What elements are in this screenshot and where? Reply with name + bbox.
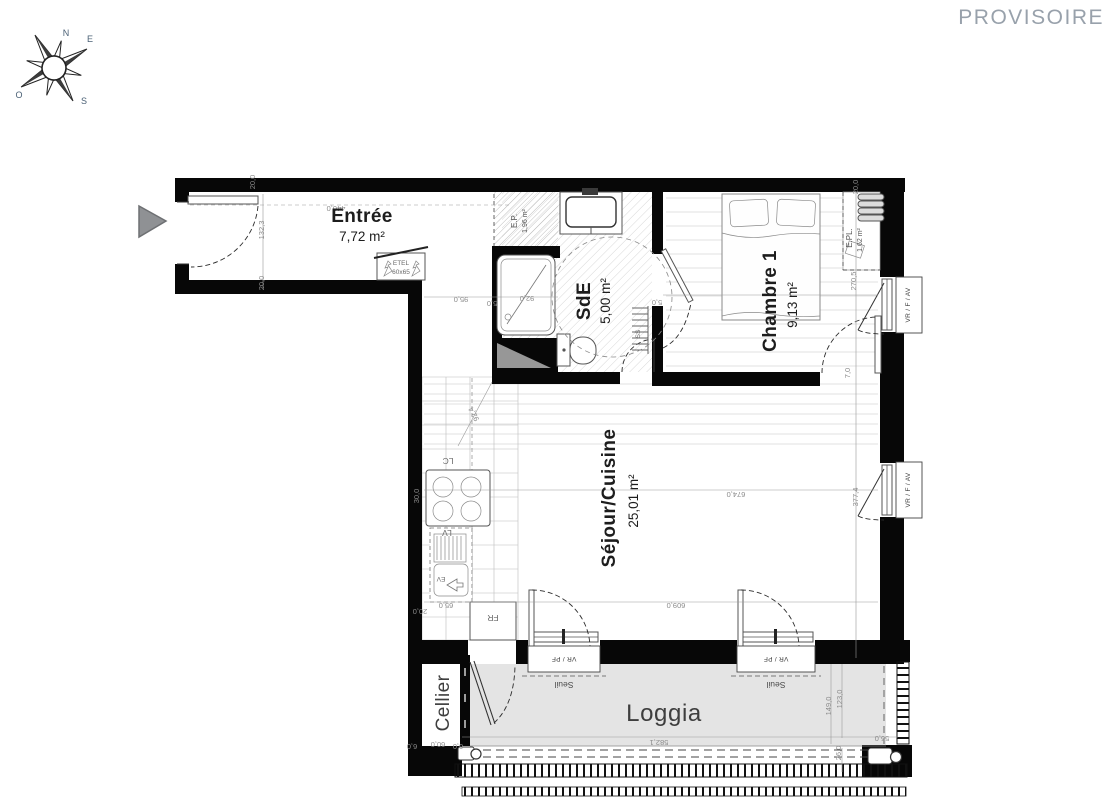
compass-east-label: E xyxy=(87,34,93,44)
compass-south-label: S xyxy=(81,96,87,106)
room-area-sde: 5,00 m² xyxy=(598,278,613,324)
closet-label-ep: E.P. xyxy=(510,214,519,228)
dimension-label: 149,0 xyxy=(824,697,833,716)
floor-plan-page: PROVISOIRE xyxy=(0,0,1112,800)
dimension-label: 132,3 xyxy=(257,221,266,240)
room-area-chambre1: 9,13 m² xyxy=(785,282,800,328)
window-label: VR / PF xyxy=(552,655,577,662)
room-label-entree: Entrée xyxy=(331,206,393,227)
dimension-label: 26,0 xyxy=(834,746,843,761)
sink xyxy=(430,528,472,602)
dimension-label: 674,0 xyxy=(727,490,746,499)
dimension-label: 20,0 xyxy=(257,276,266,291)
room-label-sde: SdE xyxy=(574,282,595,320)
sill-label: Seuil xyxy=(766,680,785,690)
entry-door xyxy=(177,196,258,267)
fixture-label-fr: FR xyxy=(487,613,498,623)
chambre-closet-door xyxy=(661,249,693,348)
fixture-label-lc: LC xyxy=(443,456,454,466)
hob xyxy=(426,470,490,526)
dimension-label: 123,0 xyxy=(835,690,844,709)
dimension-label: 56,0 xyxy=(875,734,890,743)
chambre-window: VR / F / AV xyxy=(858,277,922,334)
sill-label: Seuil xyxy=(554,680,573,690)
room-label-chambre1: Chambre 1 xyxy=(760,250,781,352)
window-label: VR / F / AV xyxy=(905,287,912,322)
entrance-arrow-icon xyxy=(139,206,166,237)
chambre-door xyxy=(822,316,881,373)
dimension-label: 5,0 xyxy=(652,298,662,307)
closet-label-epl: E.PL. xyxy=(845,228,854,248)
room-label-loggia: Loggia xyxy=(626,700,702,727)
water-heater-icon xyxy=(858,194,884,221)
dimension-label: 65,0 xyxy=(439,601,454,610)
dimension-label: 582,1 xyxy=(650,738,669,747)
dimension-label: 95,0 xyxy=(454,295,469,304)
dimension-label: 6,0 xyxy=(453,742,463,751)
window-label: VR / F / AV xyxy=(905,472,912,507)
floor-plan-drawing: N E S O xyxy=(0,0,1112,800)
fixture-label-etel-size: 60x65 xyxy=(392,269,410,276)
room-area-sejour: 25,01 m² xyxy=(626,474,641,528)
compass-icon: N E S O xyxy=(2,16,106,120)
dimension-label: 6,0 xyxy=(407,742,417,751)
compass-west-label: O xyxy=(15,90,22,100)
sejour-window: VR / F / AV xyxy=(858,462,922,520)
fixture-label-ev: EV xyxy=(436,575,445,582)
dimension-label: 609,0 xyxy=(667,601,686,610)
dimension-label: 30,0 xyxy=(412,489,421,504)
toilet xyxy=(557,334,596,366)
dimension-label: 7,0 xyxy=(843,368,852,378)
fixture-label-ss: SS xyxy=(635,329,642,338)
dimension-label: 20,0 xyxy=(413,607,428,616)
closet-area-epl: 1,62 m² xyxy=(857,227,864,251)
fixture-label-etel: ETEL xyxy=(393,260,410,267)
room-area-entree: 7,72 m² xyxy=(339,229,385,244)
dimension-label: 5,0 xyxy=(487,299,497,308)
dimension-label: 20,0 xyxy=(248,175,257,190)
fixture-label-lv: LV xyxy=(442,528,452,538)
dimension-label: 270,5 xyxy=(849,272,858,291)
compass-north-label: N xyxy=(63,28,70,38)
room-label-sejour: Séjour/Cuisine xyxy=(599,429,620,568)
closet-area-ep: 1,96 m² xyxy=(522,208,529,232)
dimension-label: 60,0 xyxy=(431,740,446,749)
dimension-label: 377,4 xyxy=(851,488,860,507)
washbasin xyxy=(560,188,622,234)
window-label: VR / PF xyxy=(764,655,789,662)
dimension-label: 20,0 xyxy=(851,180,860,195)
room-label-cellier: Cellier xyxy=(433,674,454,731)
dimension-label: 92,0 xyxy=(520,294,535,303)
